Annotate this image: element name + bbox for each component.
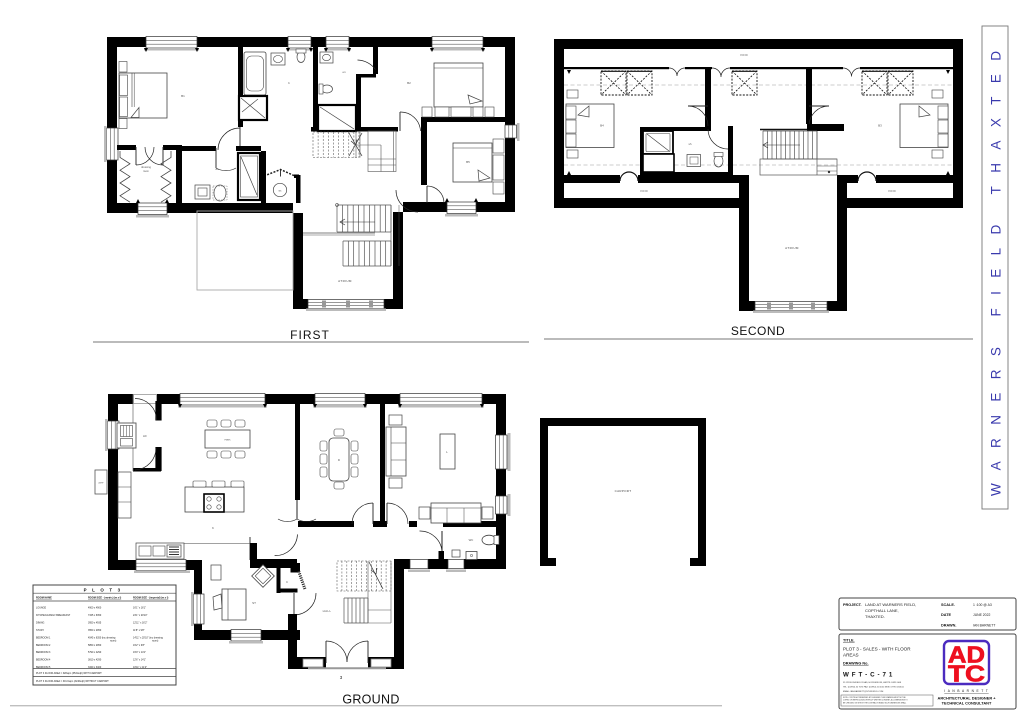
svg-text:COPTHALL LANE,: COPTHALL LANE,	[865, 608, 899, 613]
svg-text:room): room)	[110, 640, 116, 643]
svg-text:ROOM SIZE - (metric) (w x l): ROOM SIZE - (metric) (w x l)	[88, 597, 121, 600]
svg-text:ST: ST	[252, 601, 256, 605]
svg-text:TEL: (01992) 42 7575 FAX: (01: TEL: (01992) 42 7575 FAX: (01992) 41 005…	[843, 686, 905, 689]
svg-text:HALL: HALL	[323, 609, 332, 613]
svg-text:GROUND: GROUND	[342, 693, 399, 707]
svg-text:ROOM NAME: ROOM NAME	[36, 597, 52, 600]
svg-text:LOUNGE: LOUNGE	[36, 607, 47, 610]
svg-text:VOID: VOID	[640, 189, 648, 193]
svg-text:19'0" x 14'1": 19'0" x 14'1"	[133, 651, 146, 654]
svg-text:BEDROOM 4: BEDROOM 4	[36, 659, 51, 662]
svg-text:11'8" x 9'8": 11'8" x 9'8"	[133, 629, 145, 632]
svg-text:PLOT 3 FLOOR AREA = 328sqm (35: PLOT 3 FLOOR AREA = 328sqm (3531sqft) WI…	[36, 672, 102, 675]
svg-text:dressing: dressing	[141, 165, 151, 169]
svg-text:WC: WC	[469, 538, 474, 542]
svg-text:59 CROUCHFIELD ROAD, HODDESDON: 59 CROUCHFIELD ROAD, HODDESDON, HERTS. E…	[843, 681, 902, 684]
svg-text:B4: B4	[600, 124, 604, 128]
svg-text:COPIED OR REPRODUCED WITHOUT W: COPIED OR REPRODUCED WITHOUT WRITTEN CON…	[843, 699, 908, 702]
svg-text:STUDY: STUDY	[36, 629, 45, 632]
svg-text:C: C	[286, 580, 288, 584]
svg-text:P L O T 3: P L O T 3	[84, 587, 123, 592]
svg-text:SCALE.: SCALE.	[941, 603, 955, 607]
svg-text:4900 x 4900: 4900 x 4900	[88, 607, 102, 610]
svg-text:ASHP: ASHP	[99, 482, 105, 485]
svg-text:19'2" x 9'8": 19'2" x 9'8"	[133, 644, 145, 647]
svg-text:BEDROOM 1: BEDROOM 1	[36, 636, 51, 639]
svg-text:ROOM SIZE - (imperial) (w x l): ROOM SIZE - (imperial) (w x l)	[133, 597, 168, 600]
svg-text:24'1" x 20'10": 24'1" x 20'10"	[133, 614, 148, 617]
svg-text:BE CHECKED ON SITE BY THE CONT: BE CHECKED ON SITE BY THE CONTRACTOR AND…	[843, 701, 906, 704]
svg-text:16'1" x 16'1": 16'1" x 16'1"	[133, 607, 146, 610]
svg-text:ATRIUM: ATRIUM	[338, 279, 352, 283]
svg-text:12'6" x 14'1": 12'6" x 14'1"	[133, 659, 146, 662]
svg-text:JUNE 2022: JUNE 2022	[973, 613, 990, 617]
svg-text:LIF: LIF	[143, 434, 147, 438]
svg-text:LAND AT WARNERS FIELD,: LAND AT WARNERS FIELD,	[865, 602, 916, 607]
svg-text:B3: B3	[878, 124, 882, 128]
svg-text:PLOT 3 FLOOR AREA = 301.6sqm (: PLOT 3 FLOOR AREA = 301.6sqm (3246sqft) …	[36, 680, 109, 683]
svg-text:KITCHEN-FAMILY-BREAKFAST: KITCHEN-FAMILY-BREAKFAST	[36, 614, 71, 617]
svg-text:AREAS: AREAS	[843, 653, 859, 658]
svg-text:7345 x 6350: 7345 x 6350	[88, 614, 102, 617]
svg-text:PROJECT.: PROJECT.	[843, 603, 862, 607]
svg-text:SECOND: SECOND	[731, 324, 785, 338]
svg-text:DINING: DINING	[36, 621, 45, 624]
svg-text:TECHNICAL CONSULTANT: TECHNICAL CONSULTANT	[942, 701, 992, 706]
svg-text:sh: sh	[689, 142, 692, 146]
svg-text:TITLE.: TITLE.	[843, 639, 855, 643]
svg-text:DRAWING No.: DRAWING No.	[843, 662, 869, 666]
svg-text:12'11" x 16'2": 12'11" x 16'2"	[133, 621, 147, 624]
svg-text:5850 x 2950: 5850 x 2950	[88, 644, 102, 647]
svg-text:CARPORT: CARPORT	[615, 489, 632, 493]
svg-text:3550 x 2950: 3550 x 2950	[88, 629, 102, 632]
svg-text:3810 x 4290: 3810 x 4290	[88, 659, 102, 662]
svg-text:WARNERS FIELD THAXTED: WARNERS FIELD THAXTED	[989, 38, 1004, 496]
svg-text:W F T - C - 7 1: W F T - C - 7 1	[843, 672, 893, 679]
svg-text:room): room)	[152, 640, 158, 643]
svg-text:1 :100 @ A3: 1 :100 @ A3	[973, 603, 992, 607]
svg-text:THAXTED.: THAXTED.	[865, 614, 885, 619]
svg-text:B5: B5	[466, 160, 470, 164]
svg-text:TC: TC	[948, 661, 985, 687]
svg-text:VOID: VOID	[888, 189, 896, 193]
svg-text:BEDROOM 2: BEDROOM 2	[36, 644, 51, 647]
svg-text:B1: B1	[181, 94, 185, 98]
svg-text:5790 x 4290: 5790 x 4290	[88, 651, 102, 654]
svg-text:DATE: DATE	[941, 613, 952, 617]
svg-text:IAN BARNETT: IAN BARNETT	[973, 624, 995, 628]
svg-text:EMAIL: IAN.BARNETT@NTLWORLD.CO: EMAIL: IAN.BARNETT@NTLWORLD.COM	[843, 690, 883, 693]
svg-text:FMBK: FMBK	[224, 440, 231, 442]
svg-text:K: K	[212, 526, 214, 530]
svg-text:14'11" x 20'10" (inc dressing: 14'11" x 20'10" (inc dressing	[133, 636, 163, 639]
svg-text:NOTE: COPYRIGHT RESERVED BY D: NOTE: COPYRIGHT RESERVED BY DESIGNER. TH…	[843, 696, 906, 699]
svg-text:I A N B A R N E T T: I A N B A R N E T T	[944, 689, 988, 693]
svg-text:FIRST: FIRST	[290, 328, 330, 342]
svg-text:ATRIUM: ATRIUM	[785, 246, 799, 250]
svg-text:B2: B2	[407, 81, 411, 85]
svg-text:DRAWN.: DRAWN.	[941, 624, 956, 628]
svg-text:VOID: VOID	[740, 53, 748, 57]
svg-text:BEDROOM 3: BEDROOM 3	[36, 651, 51, 654]
svg-text:3950 x 4935: 3950 x 4935	[88, 621, 102, 624]
svg-text:PLOT 3 - SALES - WITH FLOOR: PLOT 3 - SALES - WITH FLOOR	[843, 647, 911, 652]
svg-text:en: en	[342, 70, 346, 74]
svg-text:room: room	[143, 169, 149, 173]
